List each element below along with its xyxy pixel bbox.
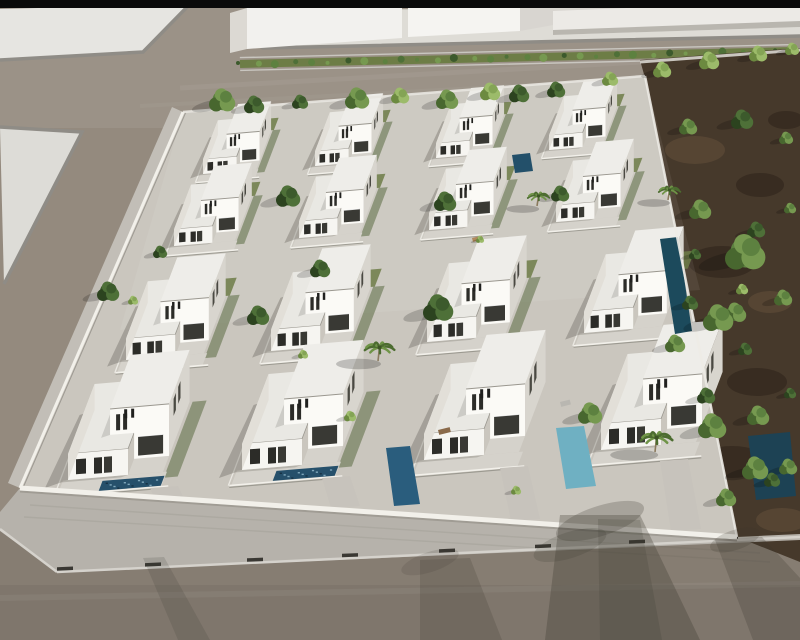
window xyxy=(432,439,442,455)
roof-vent xyxy=(487,389,490,398)
roof-vent xyxy=(124,409,127,418)
window xyxy=(205,204,208,215)
roof-vent xyxy=(234,134,236,139)
window xyxy=(242,149,256,161)
roof-vent xyxy=(471,118,473,123)
roof-vent xyxy=(131,409,134,418)
roof-vent xyxy=(178,302,180,309)
gate xyxy=(247,558,263,562)
window xyxy=(290,404,294,420)
window xyxy=(94,457,102,474)
window xyxy=(588,125,602,137)
window xyxy=(316,223,321,234)
window xyxy=(434,216,440,226)
window xyxy=(197,231,202,242)
window xyxy=(460,188,463,199)
window xyxy=(472,394,476,410)
roof-vent xyxy=(346,126,348,131)
gate xyxy=(57,567,73,571)
gate xyxy=(342,553,358,557)
window xyxy=(587,180,590,191)
window xyxy=(609,429,619,445)
roof-vent xyxy=(480,389,483,398)
window xyxy=(312,424,337,445)
window xyxy=(354,141,368,153)
window xyxy=(116,414,120,430)
top-edge xyxy=(0,0,800,8)
window xyxy=(448,323,455,337)
window xyxy=(614,314,621,328)
roof-vent xyxy=(305,399,308,408)
window xyxy=(605,314,612,328)
roof-vent xyxy=(172,302,174,309)
window xyxy=(147,341,154,355)
window xyxy=(460,436,468,453)
window xyxy=(569,137,573,146)
roof-vent xyxy=(636,275,638,282)
top-black-strip xyxy=(0,0,800,8)
window xyxy=(278,333,286,346)
window xyxy=(494,414,519,435)
window xyxy=(268,447,276,464)
roof-vent xyxy=(317,293,319,300)
pool-strip-top xyxy=(512,153,533,173)
scene xyxy=(0,0,800,640)
window xyxy=(623,279,626,292)
window xyxy=(344,209,360,223)
window xyxy=(649,384,653,400)
window xyxy=(278,446,286,463)
roof-vent xyxy=(596,176,598,182)
window xyxy=(452,215,457,226)
building-a-side xyxy=(230,8,247,53)
roof-vent xyxy=(479,284,481,291)
window xyxy=(320,154,326,163)
window xyxy=(450,437,458,454)
window xyxy=(627,427,635,444)
roof-vent xyxy=(214,200,216,206)
roof-vent xyxy=(580,110,582,115)
roof-vent xyxy=(298,399,301,408)
window xyxy=(457,323,464,337)
window xyxy=(564,137,568,146)
roof-vent xyxy=(664,379,667,388)
window xyxy=(104,456,112,473)
window xyxy=(304,224,310,234)
window xyxy=(591,315,599,328)
window xyxy=(301,332,308,346)
window xyxy=(579,207,584,218)
window xyxy=(156,341,163,355)
roof-vent xyxy=(339,192,341,198)
window xyxy=(250,449,260,465)
window xyxy=(310,297,313,310)
roof-vent xyxy=(350,126,352,131)
window xyxy=(179,232,185,242)
window xyxy=(329,314,350,331)
window xyxy=(76,459,86,475)
window xyxy=(441,146,447,155)
roof-vent xyxy=(467,118,469,123)
window xyxy=(219,217,235,231)
roof-vent xyxy=(584,110,586,115)
roof-vent xyxy=(657,379,660,388)
window xyxy=(322,223,327,234)
window xyxy=(342,129,344,138)
window xyxy=(485,305,506,322)
window xyxy=(133,342,141,355)
window xyxy=(601,193,617,207)
window xyxy=(642,296,663,313)
window xyxy=(456,145,460,154)
window xyxy=(230,137,232,146)
roof-vent xyxy=(473,284,475,291)
window xyxy=(554,138,560,147)
window xyxy=(573,207,578,218)
window xyxy=(184,323,205,340)
window xyxy=(191,231,196,242)
aerial-render-svg xyxy=(0,0,800,640)
roof-vent xyxy=(469,184,471,190)
window xyxy=(671,404,696,425)
window xyxy=(463,121,465,130)
window xyxy=(446,215,451,226)
window xyxy=(330,196,333,207)
window xyxy=(561,208,567,218)
window xyxy=(451,145,455,154)
window xyxy=(474,201,490,215)
window xyxy=(138,434,163,455)
roof-vent xyxy=(630,275,632,282)
roof-vent xyxy=(210,201,212,207)
window xyxy=(165,306,168,319)
roof-vent xyxy=(592,177,594,183)
window xyxy=(208,162,214,171)
roof-vent xyxy=(238,134,240,139)
roof-vent xyxy=(335,193,337,199)
window xyxy=(434,324,442,337)
window xyxy=(576,113,578,122)
window xyxy=(292,332,299,346)
roof-vent xyxy=(465,185,467,191)
window xyxy=(466,288,469,301)
window xyxy=(330,153,334,162)
window xyxy=(475,133,489,145)
roof-vent xyxy=(323,293,325,300)
